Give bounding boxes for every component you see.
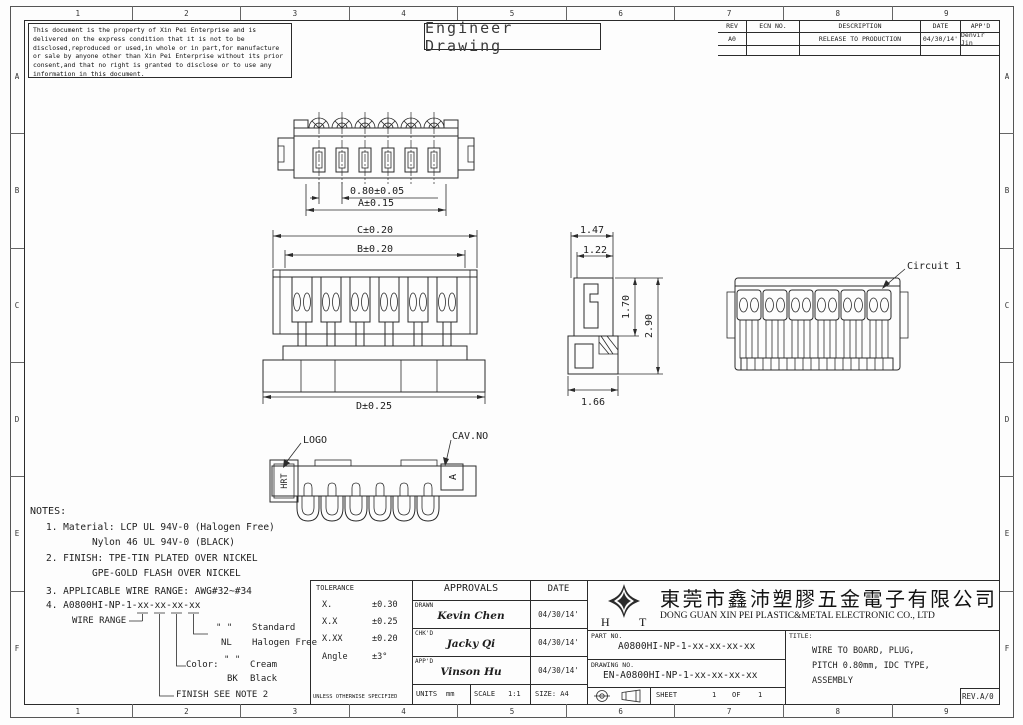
zone-column-label: 6: [566, 704, 675, 718]
nl-value: Halogen Free: [252, 638, 317, 648]
drawn-date: 04/30/14': [530, 610, 587, 619]
title-line-2: PITCH 0.80mm, IDC TYPE,: [812, 661, 930, 671]
zone-column-label: 5: [457, 704, 566, 718]
dim-170: 1.70: [621, 295, 632, 319]
drawing-sheet: 1 2 3 4 5 6 7 8 9 1 2 3 4 5 6 7 8 9 A B …: [0, 0, 1023, 725]
projection-symbols: [590, 688, 648, 704]
side-view-drawing: 1.47 1.22 1.70 2.90 1.66: [551, 224, 703, 412]
logo-callout-label: LOGO: [303, 435, 327, 446]
zone-rows-left: A B C D E F: [10, 20, 24, 705]
drawn-label: DRAWN: [415, 602, 433, 609]
drawn-signature: Kevin Chen: [412, 610, 530, 622]
notes-heading: NOTES:: [30, 506, 66, 517]
appd-label: APP'D: [415, 658, 433, 665]
cav-no-callout-label: CAV.NO: [452, 431, 488, 442]
standard-value: Standard: [252, 623, 295, 633]
units-label: UNITS: [416, 690, 437, 698]
logo-marking-text: HRT: [280, 473, 290, 488]
dim-147: 1.47: [580, 225, 604, 236]
logo-letter-h: H: [601, 615, 610, 629]
title-label: TITLE:: [789, 632, 812, 640]
tolerance-footer: UNLESS OTHERWISE SPECIFIED: [313, 694, 397, 700]
rev-value: A0: [718, 33, 747, 46]
dim-pitch: 0.80±0.05: [350, 186, 404, 197]
finish-note: FINISH SEE NOTE 2: [176, 690, 268, 700]
dim-c: C±0.20: [357, 225, 393, 236]
appd-col-header: APP'D: [961, 20, 1000, 33]
scale-label: SCALE: [474, 690, 495, 698]
zone-column-label: 7: [674, 6, 783, 20]
chkd-signature: Jacky Qi: [412, 638, 530, 650]
chkd-label: CHK'D: [415, 630, 433, 637]
zone-column-label: 2: [132, 6, 241, 20]
dim-122: 1.22: [583, 245, 607, 256]
revision-table: REV ECN NO. DESCRIPTION DATE APP'D A0 RE…: [718, 20, 1000, 56]
cream-code: " ": [224, 655, 240, 665]
tolerance-heading: TOLERANCE: [316, 584, 354, 592]
sheet-of-label: OF: [732, 691, 740, 699]
company-name-english: DONG GUAN XIN PEI PLASTIC&METAL ELECTRON…: [660, 611, 935, 621]
zone-rows-right: A B C D E F: [1000, 20, 1014, 705]
page-title: Engineer Drawing: [425, 19, 600, 55]
bk-value: Black: [250, 674, 277, 684]
logo-letter-t: T: [639, 615, 647, 629]
cav-marking-text: A: [448, 474, 459, 480]
zone-row-label: F: [10, 591, 24, 705]
part-number-breakdown: 4. A0800HI-NP-1-xx-xx-xx-xx WIRE RANGE "…: [28, 600, 328, 704]
approvals-date-heading: DATE: [530, 584, 587, 594]
part-no-label: PART NO.: [591, 632, 622, 640]
zone-column-label: 7: [674, 704, 783, 718]
engineer-drawing-title-box: Engineer Drawing: [424, 23, 601, 50]
zone-column-label: 8: [783, 704, 892, 718]
zone-column-label: 1: [24, 6, 132, 20]
size-label: SIZE: A4: [535, 690, 569, 698]
zone-column-label: 3: [240, 704, 349, 718]
zone-row-label: E: [1000, 476, 1014, 590]
zone-column-label: 4: [349, 704, 458, 718]
date-col-header: DATE: [921, 20, 961, 33]
tolerance-x-value: ±0.30: [372, 600, 398, 610]
property-disclaimer: This document is the property of Xin Pei…: [28, 23, 292, 78]
description-col-header: DESCRIPTION: [800, 20, 921, 33]
note-4: 4. A0800HI-NP-1-xx-xx-xx-xx: [46, 600, 200, 611]
approvals-heading: APPROVALS: [412, 583, 530, 594]
zone-column-label: 3: [240, 6, 349, 20]
units-value: mm: [446, 690, 454, 698]
color-label: Color:: [186, 660, 219, 670]
dim-overall-width: A±0.15: [358, 198, 394, 209]
rev-description: RELEASE TO PRODUCTION: [800, 33, 921, 46]
sheet-label: SHEET: [656, 691, 677, 699]
tolerance-xxx-label: X.XX: [322, 634, 342, 644]
bottom-view-drawing: HRT A LOGO CAV.NO: [255, 424, 505, 536]
zone-row-label: C: [10, 248, 24, 362]
tolerance-angle-value: ±3°: [372, 652, 387, 662]
sheet-total: 1: [758, 691, 762, 699]
tolerance-xxx-value: ±0.20: [372, 634, 398, 644]
appd-signature: Vinson Hu: [412, 666, 530, 678]
company-logo: H T: [595, 582, 653, 628]
zone-row-label: B: [10, 133, 24, 247]
title-line-1: WIRE TO BOARD, PLUG,: [812, 646, 914, 656]
note-2: 2. FINISH: TPE-TIN PLATED OVER NICKEL: [46, 553, 258, 564]
zone-row-label: C: [1000, 248, 1014, 362]
rev-label: REV.A/0: [962, 692, 994, 701]
nl-code: NL: [221, 638, 232, 648]
wire-range-label: WIRE RANGE: [72, 616, 126, 626]
tolerance-angle-label: Angle: [322, 652, 348, 662]
top-view-drawing: 0.80±0.05 A±0.15: [266, 92, 488, 218]
dim-290: 2.90: [644, 314, 655, 338]
circuit-1-label: Circuit 1: [907, 261, 961, 272]
chkd-date: 04/30/14': [530, 638, 587, 647]
zone-row-label: A: [10, 20, 24, 133]
zone-column-label: 9: [892, 704, 1001, 718]
zone-row-label: E: [10, 476, 24, 590]
rev-approver: Denvir Jin: [961, 33, 1000, 46]
dim-b: B±0.20: [357, 244, 393, 255]
note-2b: GPE-GOLD FLASH OVER NICKEL: [92, 568, 241, 579]
title-line-3: ASSEMBLY: [812, 676, 853, 686]
dim-166: 1.66: [581, 397, 605, 408]
tolerance-x-label: X.: [322, 600, 332, 610]
front-view-drawing: C±0.20 B±0.20 D±0.25: [255, 224, 493, 412]
bk-code: BK: [227, 674, 238, 684]
zone-row-label: B: [1000, 133, 1014, 247]
tolerance-xx-label: X.X: [322, 617, 337, 627]
zone-column-label: 1: [24, 704, 132, 718]
rev-col-header: REV: [718, 20, 747, 33]
zone-row-label: D: [10, 362, 24, 476]
zone-column-label: 2: [132, 704, 241, 718]
zone-column-label: 8: [783, 6, 892, 20]
scale-value: 1:1: [508, 690, 521, 698]
company-name-chinese: 東莞市鑫沛塑膠五金電子有限公司: [660, 583, 998, 612]
tolerance-xx-value: ±0.25: [372, 617, 398, 627]
ecn-value: [747, 33, 800, 46]
note-3: 3. APPLICABLE WIRE RANGE: AWG#32~#34: [46, 586, 252, 597]
cream-value: Cream: [250, 660, 277, 670]
rear-view-drawing: Circuit 1: [715, 242, 965, 394]
zone-row-label: D: [1000, 362, 1014, 476]
part-no-value: A0800HI-NP-1-xx-xx-xx-xx: [618, 641, 755, 652]
zone-column-label: 9: [892, 6, 1001, 20]
appd-date: 04/30/14': [530, 666, 587, 675]
standard-code: " ": [216, 623, 232, 633]
ecn-col-header: ECN NO.: [747, 20, 800, 33]
zone-row-label: F: [1000, 591, 1014, 705]
sheet-number: 1: [712, 691, 716, 699]
note-1: 1. Material: LCP UL 94V-0 (Halogen Free): [46, 522, 275, 533]
rev-date: 04/30/14': [921, 33, 961, 46]
zone-columns-bottom: 1 2 3 4 5 6 7 8 9: [24, 704, 1000, 718]
dim-d: D±0.25: [356, 401, 392, 412]
zone-row-label: A: [1000, 20, 1014, 133]
note-1b: Nylon 46 UL 94V-0 (BLACK): [92, 537, 235, 548]
drawing-no-label: DRAWING NO.: [591, 661, 634, 669]
drawing-no-value: EN-A0800HI-NP-1-xx-xx-xx-xx: [603, 670, 757, 681]
